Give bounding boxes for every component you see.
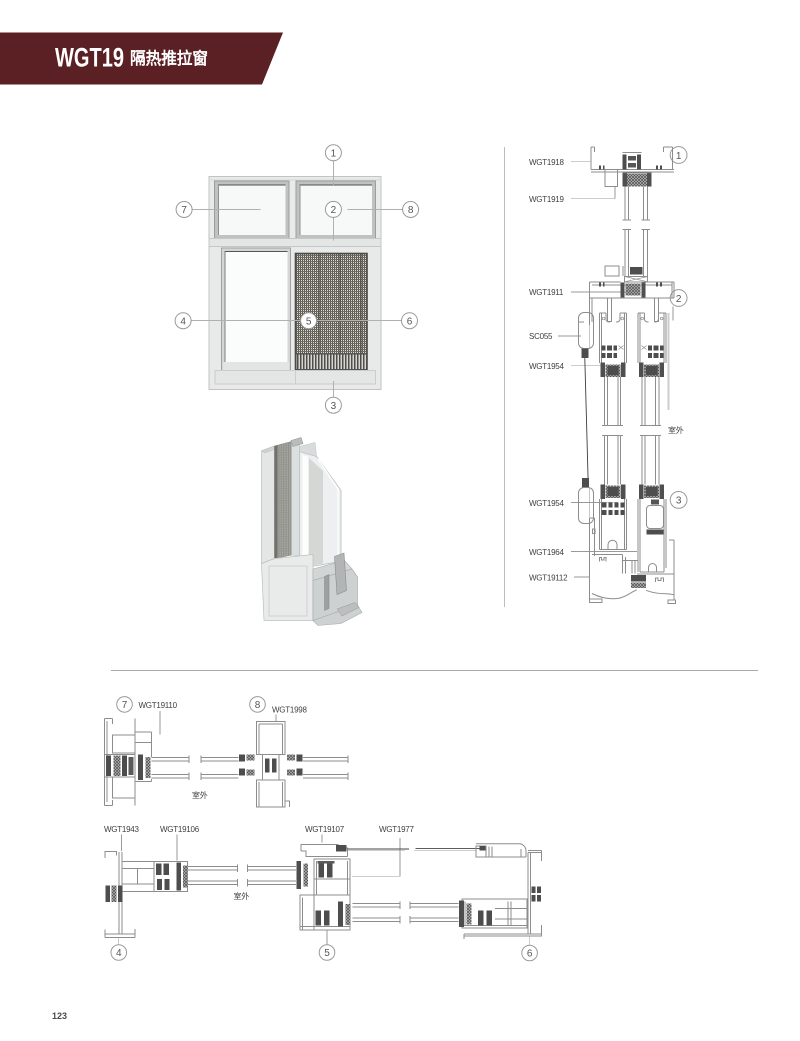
svg-text:WGT19106: WGT19106 <box>160 825 200 834</box>
svg-text:室外: 室外 <box>668 425 684 435</box>
svg-text:8: 8 <box>255 700 261 711</box>
svg-text:123: 123 <box>52 1011 67 1021</box>
svg-text:SC055: SC055 <box>529 332 553 341</box>
svg-text:2: 2 <box>676 294 682 305</box>
svg-text:WGT1954: WGT1954 <box>529 499 565 508</box>
svg-text:5: 5 <box>306 316 312 327</box>
svg-text:WGT1977: WGT1977 <box>379 825 415 834</box>
svg-text:WGT19: WGT19 <box>55 43 124 73</box>
svg-text:8: 8 <box>408 205 414 216</box>
svg-text:WGT19110: WGT19110 <box>139 701 178 710</box>
svg-text:WGT1919: WGT1919 <box>529 195 565 204</box>
svg-text:7: 7 <box>181 205 187 216</box>
svg-text:WGT19107: WGT19107 <box>305 825 345 834</box>
svg-text:室外: 室外 <box>234 891 250 901</box>
svg-text:室外: 室外 <box>192 790 208 800</box>
svg-text:3: 3 <box>676 496 682 507</box>
svg-text:4: 4 <box>116 948 122 959</box>
svg-text:WGT1943: WGT1943 <box>104 825 140 834</box>
svg-text:6: 6 <box>527 949 533 960</box>
svg-text:5: 5 <box>324 948 330 959</box>
svg-text:1: 1 <box>331 148 337 159</box>
svg-text:2: 2 <box>331 205 337 216</box>
svg-text:WGT1918: WGT1918 <box>529 158 565 167</box>
svg-text:3: 3 <box>331 401 337 412</box>
svg-text:7: 7 <box>122 700 128 711</box>
svg-text:隔热推拉窗: 隔热推拉窗 <box>130 48 208 68</box>
svg-text:6: 6 <box>407 316 413 327</box>
svg-text:WGT1911: WGT1911 <box>529 288 564 297</box>
svg-text:WGT19112: WGT19112 <box>529 574 568 583</box>
svg-text:4: 4 <box>180 316 186 327</box>
svg-text:WGT1998: WGT1998 <box>272 706 308 715</box>
svg-text:WGT1954: WGT1954 <box>529 362 565 371</box>
svg-text:WGT1964: WGT1964 <box>529 548 565 557</box>
svg-text:1: 1 <box>676 151 682 162</box>
